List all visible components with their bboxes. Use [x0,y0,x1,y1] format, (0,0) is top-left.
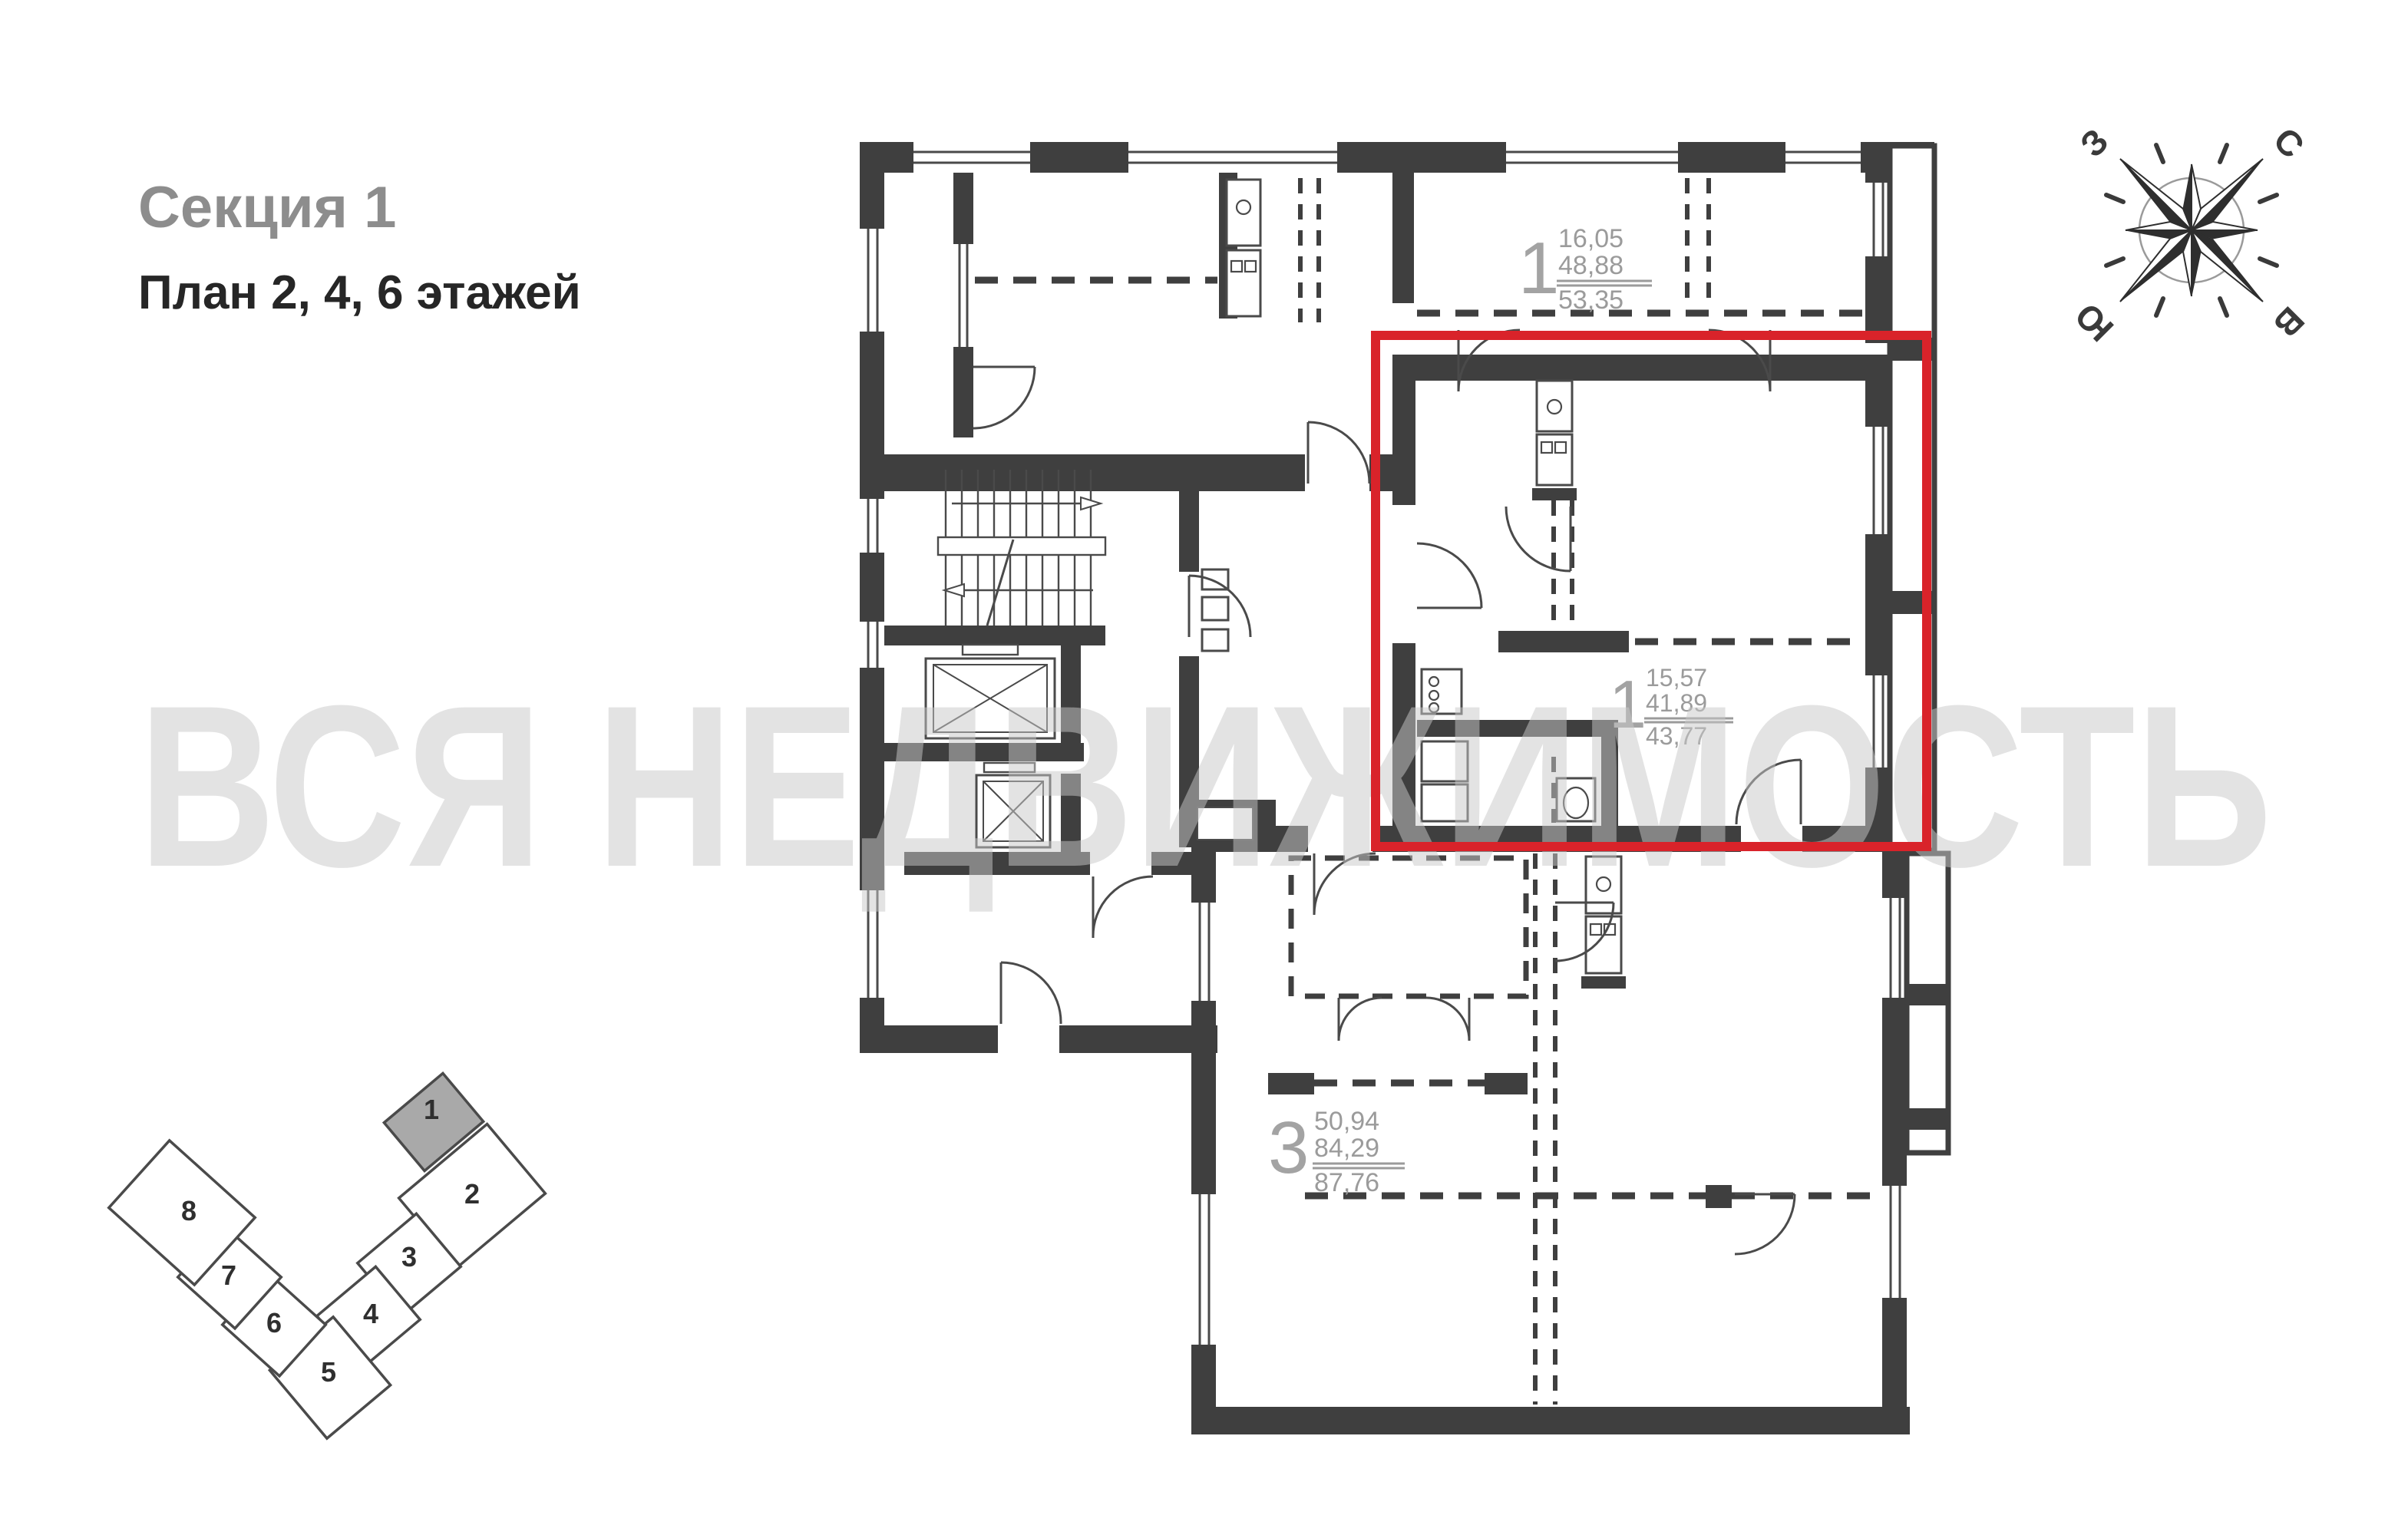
watermark-text: ВСЯ НЕДВИЖИМОСТЬ [138,657,2272,915]
minimap-section-label: 2 [464,1178,480,1210]
floor-plan-image: 1 16,05 48,88 53,35 1 15,57 41,89 43,77 … [0,0,2408,1535]
area-value: 16,05 [1558,224,1624,253]
compass-icon: З С Ю В [2067,120,2312,349]
apartment-number: 3 [1268,1107,1309,1189]
building-minimap: 1 2 3 4 5 6 7 8 [109,1073,546,1438]
minimap-section-label: 3 [401,1241,417,1273]
plan-subtitle: План 2, 4, 6 этажей [138,266,581,319]
minimap-section-label: 7 [221,1259,236,1291]
compass-east-label: В [2266,299,2312,345]
minimap-section-label: 8 [181,1195,197,1226]
apartment-number: 1 [1518,227,1559,309]
minimap-section-label: 5 [321,1356,336,1388]
area-value: 50,94 [1314,1107,1379,1136]
area-value: 87,76 [1314,1168,1379,1197]
area-value: 53,35 [1558,286,1624,315]
kitchen-fixtures-highlighted-apt [1537,381,1572,485]
area-value: 84,29 [1314,1134,1379,1163]
minimap-section-label: 1 [424,1094,439,1125]
compass-south-label: Ю [2067,295,2121,349]
compass-north-label: С [2266,120,2312,166]
compass-west-label: З [2072,120,2116,164]
minimap-section-label: 4 [363,1298,378,1329]
apartment-label-top: 1 16,05 48,88 53,35 [1518,224,1652,315]
apartment-label-bottom: 3 50,94 84,29 87,76 [1268,1107,1405,1197]
area-value: 48,88 [1558,251,1624,280]
section-title: Секция 1 [138,175,396,240]
floor-plan-page: 1 16,05 48,88 53,35 1 15,57 41,89 43,77 … [0,0,2408,1535]
minimap-section-label: 6 [266,1307,282,1339]
